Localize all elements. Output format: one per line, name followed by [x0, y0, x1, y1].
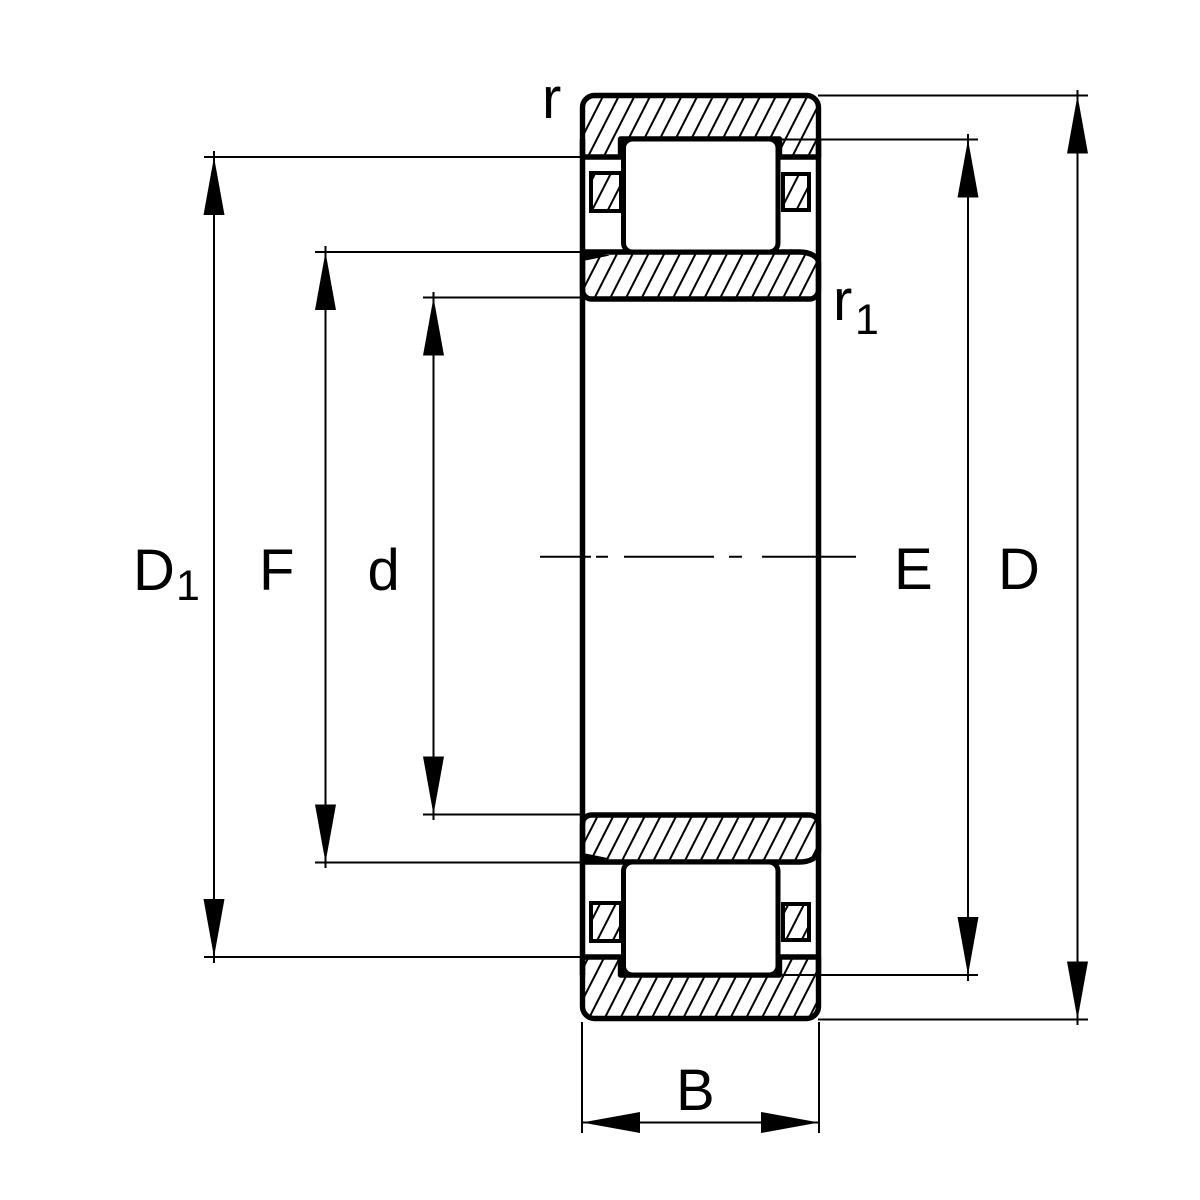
svg-text:1: 1: [855, 296, 879, 344]
svg-text:B: B: [676, 1058, 715, 1123]
svg-text:r: r: [833, 268, 852, 333]
svg-text:E: E: [894, 537, 933, 602]
svg-text:D: D: [998, 537, 1040, 602]
svg-text:F: F: [259, 538, 294, 603]
svg-text:D: D: [133, 538, 175, 603]
svg-text:r: r: [542, 66, 561, 131]
svg-text:d: d: [368, 538, 400, 603]
svg-text:1: 1: [176, 562, 200, 610]
